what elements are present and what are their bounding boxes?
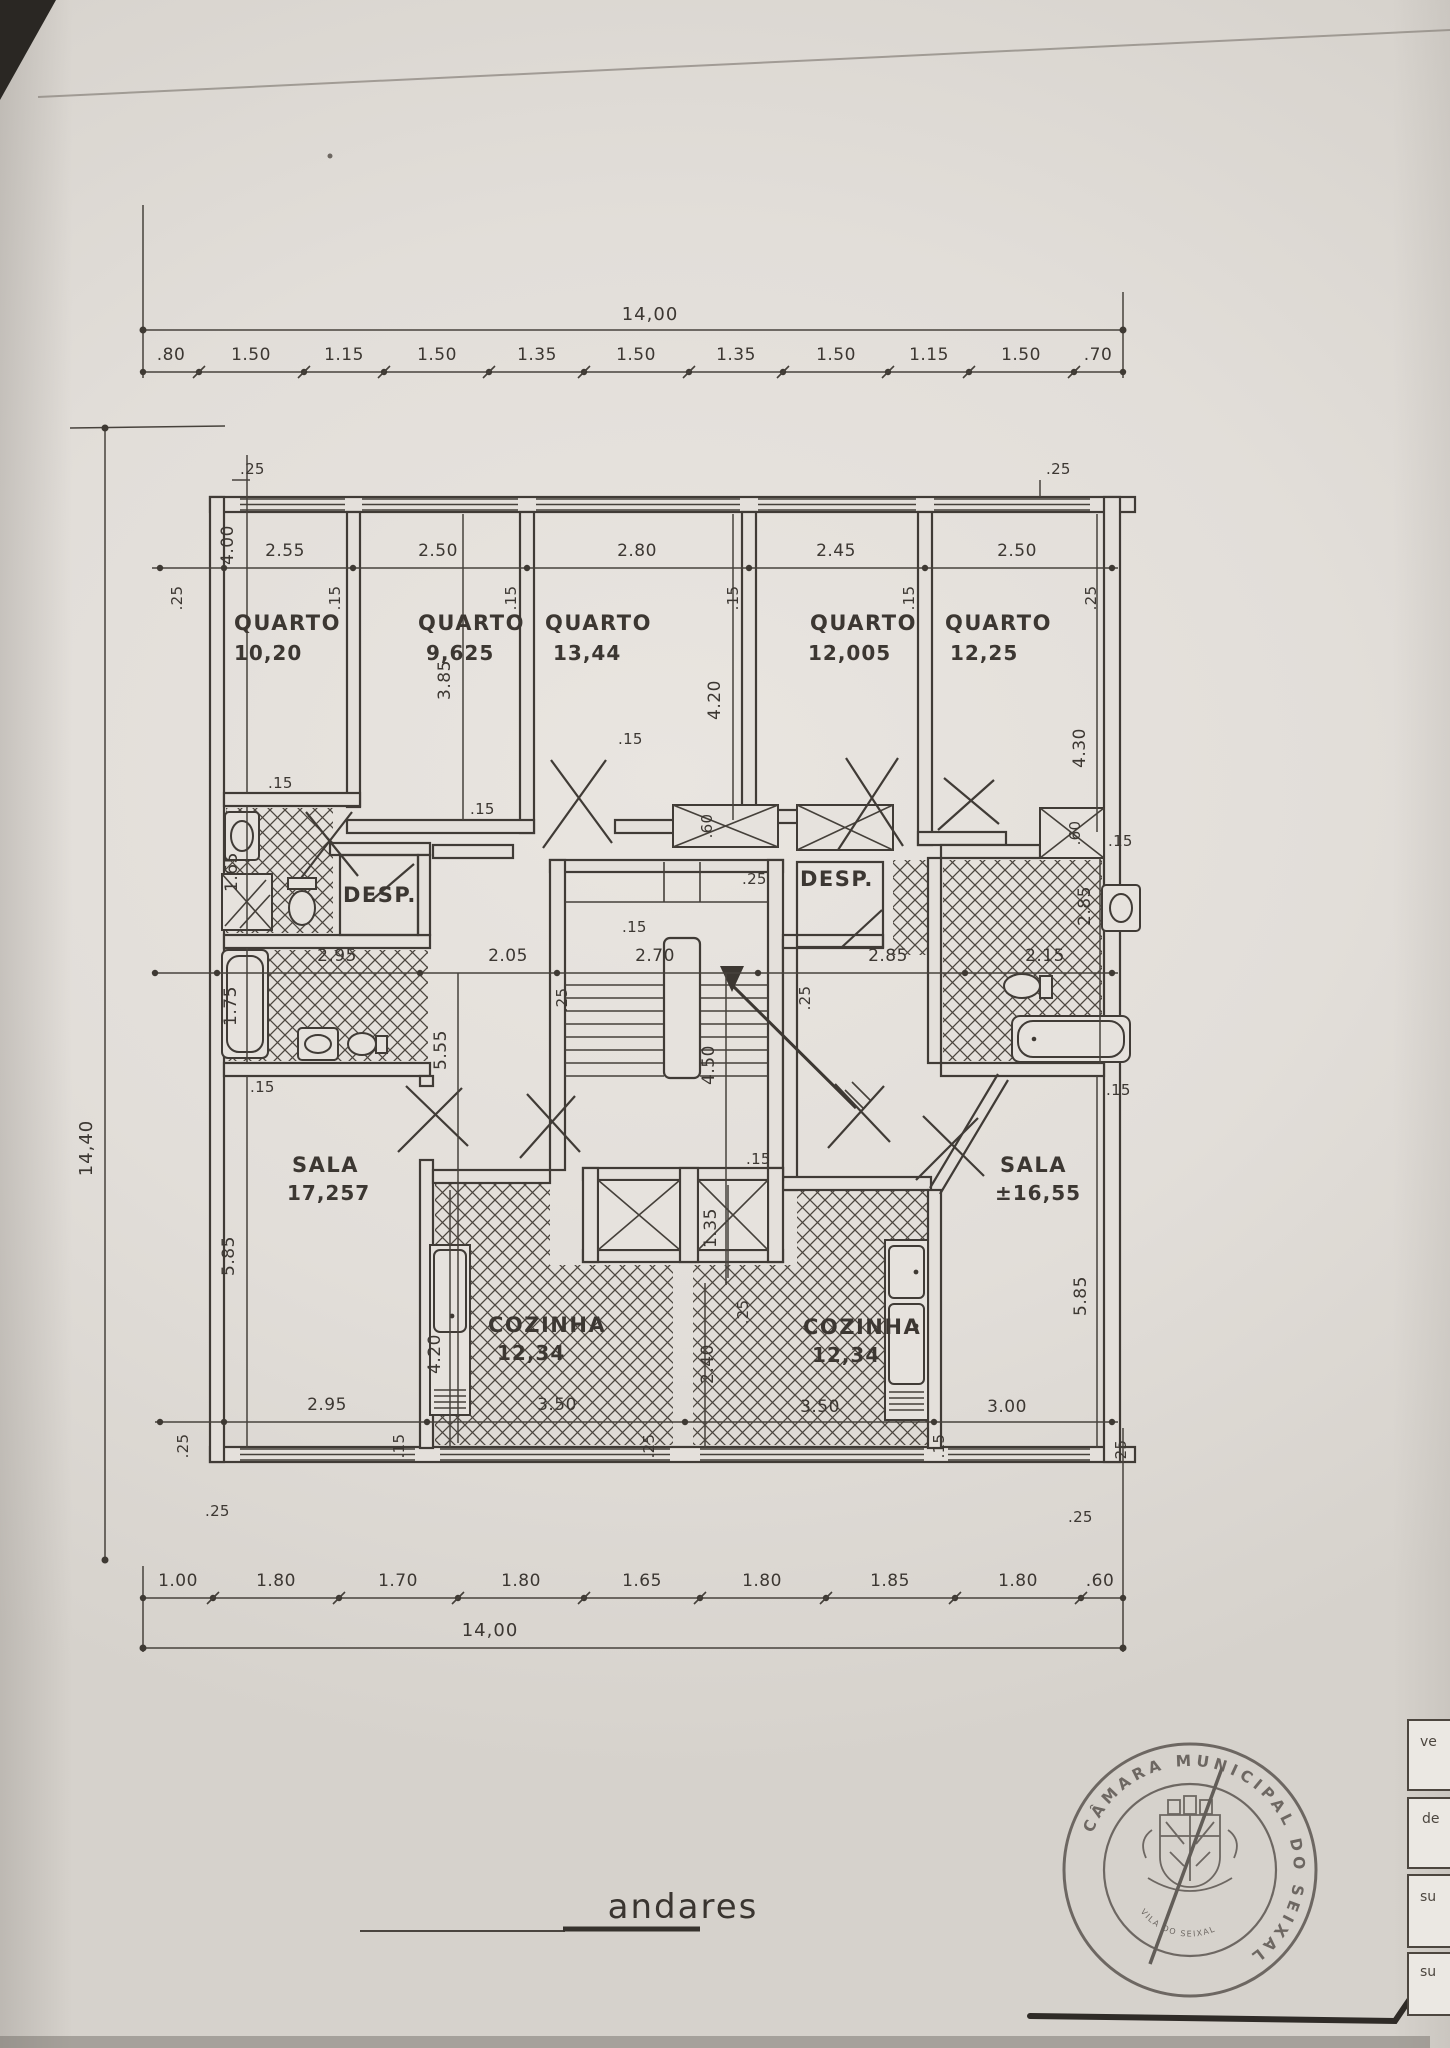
dim-wall-25: .25: [640, 1434, 658, 1459]
dim-wall-25: .25: [174, 1434, 192, 1459]
dim-wall-15: .15: [724, 586, 742, 611]
bottom-dimension-total: 14,00: [140, 1620, 1127, 1652]
room-cozinha2-name: COZINHA: [803, 1315, 921, 1339]
dim-sala2-depth: 5.85: [1071, 1276, 1091, 1316]
tab-label-3: su: [1420, 1964, 1436, 1980]
title-andares: andares: [608, 1887, 759, 1927]
dim-mid-4: 2.15: [1025, 946, 1065, 966]
dim-wall-15: .15: [390, 1434, 408, 1459]
room-quarto3-name: QUARTO: [545, 611, 652, 635]
dim-bottom-seg-0: 1.00: [158, 1571, 198, 1591]
tab-label-0: ve: [1420, 1734, 1437, 1750]
dim-room-width-1: 2.50: [418, 541, 458, 561]
dim-wall-25: .25: [553, 988, 571, 1013]
dim-wall-15: .15: [746, 1150, 771, 1168]
dim-wall-15: .15: [622, 918, 647, 936]
dim-bottom-seg-1: 1.80: [256, 1571, 296, 1591]
dim-wall-15: .15: [268, 774, 293, 792]
dim-wall-15: .15: [502, 586, 520, 611]
stamp-inner-label: VILA DO SEIXAL: [1139, 1907, 1217, 1938]
dim-mid-2: 2.70: [635, 946, 675, 966]
top-dimension-chain: .80 1.50 1.15 1.50 1.35 1.50 1.35 1.50 1…: [140, 345, 1126, 378]
dim-duct-60: .60: [698, 814, 716, 839]
room-sala1-name: SALA: [292, 1153, 359, 1177]
dim-top-seg-9: 1.50: [1001, 345, 1041, 365]
room-quarto1-name: QUARTO: [234, 611, 341, 635]
room-quarto4-name: QUARTO: [810, 611, 917, 635]
top-windows: [240, 499, 1090, 510]
dim-bottom-seg-4: 1.65: [622, 1571, 662, 1591]
dim-bottom-total: 14,00: [462, 1620, 519, 1641]
room-cozinha1-name: COZINHA: [488, 1313, 606, 1337]
dim-room-width-2: 2.80: [617, 541, 657, 561]
dim-mid-3: 2.85: [868, 946, 908, 966]
scanned-floor-plan-page: 14,00 .80 1.50 1.15 1.50 1.35 1.50 1.35 …: [0, 0, 1450, 2048]
dim-wall-25: .25: [742, 870, 767, 888]
dim-bottom-seg-3: 1.80: [501, 1571, 541, 1591]
dim-lower-0: 2.95: [307, 1395, 347, 1415]
dim-duct-60: .60: [1066, 821, 1084, 846]
dim-hall-depth: 5.55: [431, 1030, 451, 1070]
dim-bottom-seg-5: 1.80: [742, 1571, 782, 1591]
dim-stair-depth: 4.50: [699, 1045, 719, 1085]
dim-wall-15: .15: [930, 1434, 948, 1459]
room-sala2-name: SALA: [1000, 1153, 1067, 1177]
dim-wall-15: .15: [900, 586, 918, 611]
dim-bottom-seg-7: 1.80: [998, 1571, 1038, 1591]
room-sala1-area: 17,257: [287, 1181, 370, 1205]
dim-bath-top: 1.65: [222, 852, 242, 892]
room-quarto4-area: 12,005: [808, 641, 891, 665]
dim-wall-25: .25: [734, 1300, 752, 1325]
dim-top-seg-8: 1.15: [909, 345, 949, 365]
dim-top-seg-1: 1.50: [231, 345, 271, 365]
dim-bath-bottom: 1.75: [221, 986, 241, 1026]
dim-kitchen1-depth: 4.20: [425, 1334, 445, 1374]
dim-kitchen2-depth: 2.40: [698, 1344, 718, 1384]
dim-bottom-seg-2: 1.70: [378, 1571, 418, 1591]
dim-wall-25: .25: [796, 986, 814, 1011]
dim-top-seg-2: 1.15: [324, 345, 364, 365]
dim-top-seg-5: 1.50: [616, 345, 656, 365]
dim-room-width-0: 2.55: [265, 541, 305, 561]
dim-bottom-seg-8: .60: [1086, 1571, 1115, 1591]
dim-wall-25: .25: [205, 1502, 230, 1520]
dim-sala1-depth: 5.85: [219, 1236, 239, 1276]
room-quarto5-name: QUARTO: [945, 611, 1052, 635]
bottom-windows: [240, 1449, 1090, 1460]
dim-top-seg-6: 1.35: [716, 345, 756, 365]
dim-top-seg-4: 1.35: [517, 345, 557, 365]
dim-wall-15: .15: [250, 1078, 275, 1096]
room-cozinha2-area: 12,34: [812, 1343, 880, 1367]
floor-plan-drawing: 14,00 .80 1.50 1.15 1.50 1.35 1.50 1.35 …: [0, 0, 1450, 2048]
left-dimension-total: 14,40: [70, 425, 225, 1564]
dim-room-width-3: 2.45: [816, 541, 856, 561]
room-desp1-label: DESP.: [343, 883, 417, 907]
room-quarto5-area: 12,25: [950, 641, 1018, 665]
dim-quarto1-depth: 4.00: [218, 525, 238, 565]
dim-bath-right: 2.85: [1075, 886, 1095, 926]
drawing-title: andares: [360, 1887, 758, 1931]
dim-wall-15: .15: [1106, 1081, 1131, 1099]
dim-top-total: 14,00: [622, 304, 679, 325]
dim-shaft: 1.35: [701, 1208, 721, 1248]
dim-quarto3-depth: 4.20: [705, 680, 725, 720]
dim-wall-25: .25: [1046, 460, 1071, 478]
dim-bottom-seg-6: 1.85: [870, 1571, 910, 1591]
municipal-stamp: CÂMARA MUNICIPAL DO SEIXAL VILA DO SEIXA…: [1064, 1744, 1316, 1996]
dim-wall-15: .15: [470, 800, 495, 818]
dim-lower-2: 3.50: [800, 1397, 840, 1417]
dim-quarto2-depth: 3.85: [435, 660, 455, 700]
dim-quarto5-depth: 4.30: [1070, 728, 1090, 768]
room-quarto2-name: QUARTO: [418, 611, 525, 635]
dim-wall-25: .25: [168, 586, 186, 611]
dim-wall-25: .25: [1112, 1440, 1130, 1465]
tab-label-2: su: [1420, 1889, 1436, 1905]
dim-wall-15: .15: [326, 586, 344, 611]
dim-wall-15: .15: [1108, 832, 1133, 850]
dim-top-seg-7: 1.50: [816, 345, 856, 365]
dim-wall-25: .25: [1082, 586, 1100, 611]
coat-of-arms: [1143, 1796, 1237, 1891]
right-edge-tabs: ve de su su: [1408, 1720, 1450, 2015]
dim-top-seg-0: .80: [157, 345, 186, 365]
tab-label-1: de: [1422, 1811, 1440, 1827]
dim-left-total: 14,40: [76, 1120, 97, 1177]
room-cozinha1-area: 12,34: [497, 1341, 565, 1365]
dim-top-seg-3: 1.50: [417, 345, 457, 365]
dim-wall-25: .25: [240, 460, 265, 478]
room-quarto1-area: 10,20: [234, 641, 302, 665]
stair-direction-arrow: [720, 966, 744, 992]
dim-mid-0: 2.95: [317, 946, 357, 966]
dim-room-width-4: 2.50: [997, 541, 1037, 561]
room-quarto3-area: 13,44: [553, 641, 621, 665]
dim-wall-15: .15: [618, 730, 643, 748]
room-desp2-label: DESP.: [800, 867, 874, 891]
room-sala2-area: ±16,55: [995, 1181, 1081, 1205]
dim-lower-3: 3.00: [987, 1397, 1027, 1417]
dim-top-seg-10: .70: [1084, 345, 1113, 365]
dim-mid-1: 2.05: [488, 946, 528, 966]
dim-lower-1: 3.50: [537, 1395, 577, 1415]
dim-wall-25: .25: [1068, 1508, 1093, 1526]
